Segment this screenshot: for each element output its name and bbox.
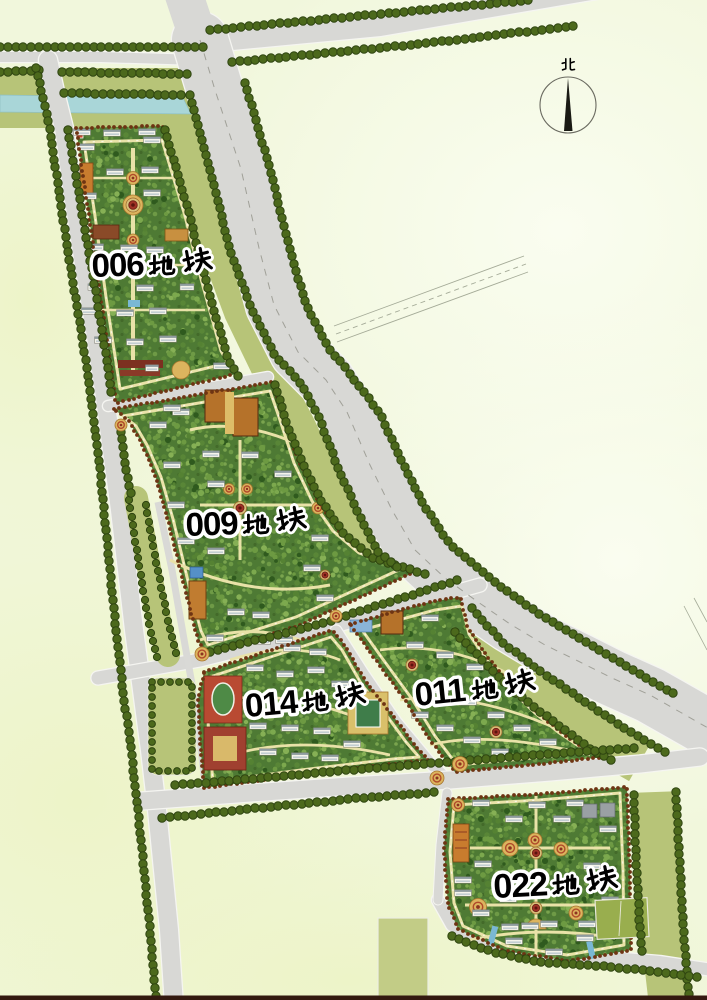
svg-text:022: 022 (492, 865, 548, 906)
svg-text:011: 011 (413, 671, 467, 713)
svg-text:006: 006 (91, 245, 145, 284)
svg-text:014: 014 (243, 682, 300, 724)
svg-text:009: 009 (185, 504, 239, 543)
